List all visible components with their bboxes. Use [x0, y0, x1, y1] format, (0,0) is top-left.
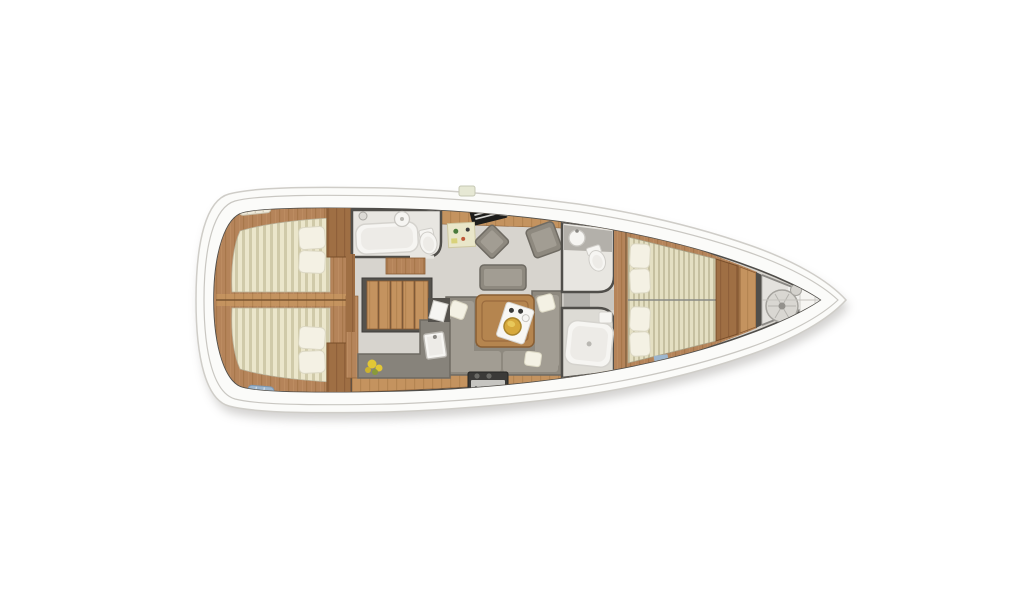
- pillow: [298, 326, 325, 350]
- forward-dresser: [716, 259, 738, 341]
- sea-chart: [447, 222, 475, 247]
- aft-head: [352, 210, 441, 257]
- pillow: [298, 250, 325, 273]
- pillow: [629, 268, 650, 293]
- sofa-pillow: [536, 293, 556, 313]
- stair-landing: [386, 258, 425, 274]
- stair-tread: [367, 281, 378, 329]
- aft-cabins: [214, 201, 352, 399]
- bow-bulkhead: [756, 272, 762, 328]
- forward-wedge-cabinet: [740, 267, 756, 333]
- floorplan-svg: [0, 0, 1024, 600]
- stair-side-wall: [346, 254, 355, 332]
- pillow: [298, 350, 325, 373]
- deck-hatch: [459, 186, 475, 196]
- shower-seat: [599, 312, 612, 323]
- forward-head-upper: [562, 222, 614, 292]
- stair-tread: [379, 281, 390, 329]
- pillow: [629, 306, 650, 331]
- stair-tread: [391, 281, 402, 329]
- shower: [564, 320, 614, 369]
- sofa-cushion: [449, 351, 501, 372]
- shower-head: [359, 212, 367, 220]
- bathtub-inner: [360, 226, 413, 251]
- pillow: [629, 331, 650, 356]
- pillow: [298, 226, 325, 250]
- pillow: [629, 243, 650, 268]
- forward-head-lower: [562, 308, 614, 378]
- forward-heads: [562, 222, 616, 378]
- wardrobe-port-aft: [327, 201, 351, 257]
- yacht-floorplan-image: [0, 0, 1024, 600]
- sofa-pillow: [524, 351, 542, 367]
- stair-tread: [403, 281, 414, 329]
